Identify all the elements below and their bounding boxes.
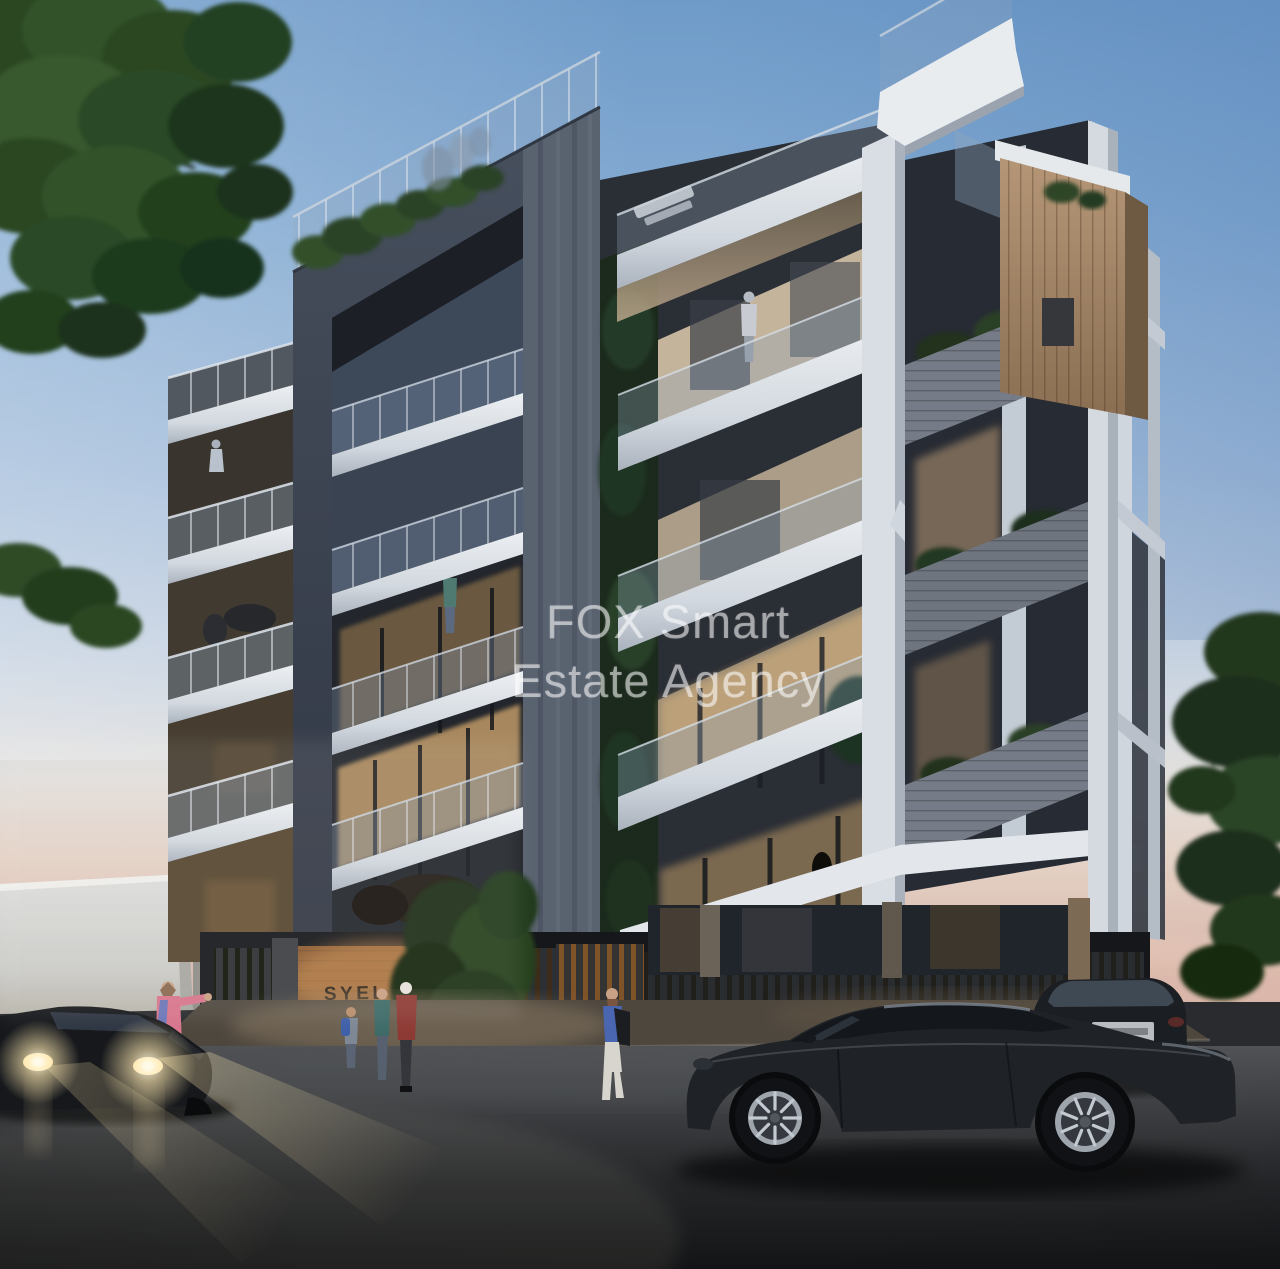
front-wheel <box>735 1078 815 1158</box>
balcony-furniture <box>224 604 276 632</box>
ground-floor-glass <box>648 898 1090 980</box>
rear-wheel <box>1041 1078 1129 1166</box>
rear-window <box>1048 980 1174 1007</box>
mid-section <box>598 101 905 962</box>
wood-penthouse <box>995 140 1148 420</box>
column <box>1068 898 1090 980</box>
dusk-apartment-building-render: SYEL 04 <box>0 0 1280 1269</box>
car-headlight <box>693 1058 713 1070</box>
light-reflection <box>26 1076 50 1152</box>
roof-plant <box>1078 191 1106 209</box>
atmospheric-haze <box>0 740 520 1020</box>
penthouse-window <box>1042 298 1074 346</box>
taillight <box>1168 1017 1184 1027</box>
light-reflection <box>136 1080 162 1164</box>
roof-plant <box>1044 181 1080 203</box>
column <box>882 902 902 978</box>
scene: SYEL 04 <box>0 0 1280 1269</box>
door-mirror <box>800 1033 816 1043</box>
column <box>700 905 720 977</box>
